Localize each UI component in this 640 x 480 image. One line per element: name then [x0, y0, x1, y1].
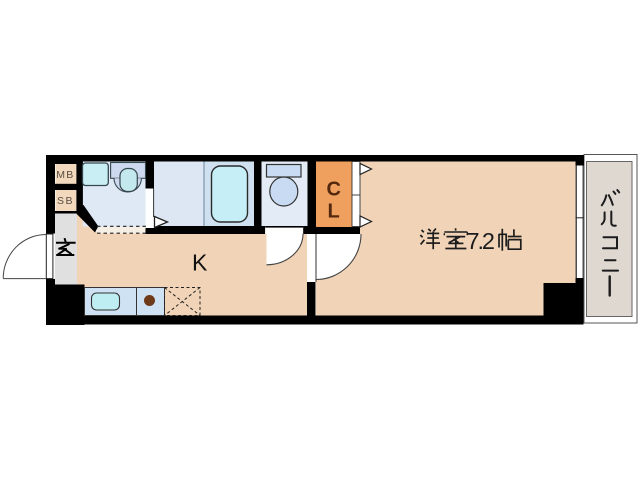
svg-text:C: C	[327, 179, 341, 201]
svg-text:7.2: 7.2	[467, 228, 496, 254]
svg-text:L: L	[328, 201, 340, 223]
svg-text:MB: MB	[56, 169, 73, 181]
svg-text:SB: SB	[57, 195, 73, 207]
svg-text:K: K	[192, 250, 208, 276]
